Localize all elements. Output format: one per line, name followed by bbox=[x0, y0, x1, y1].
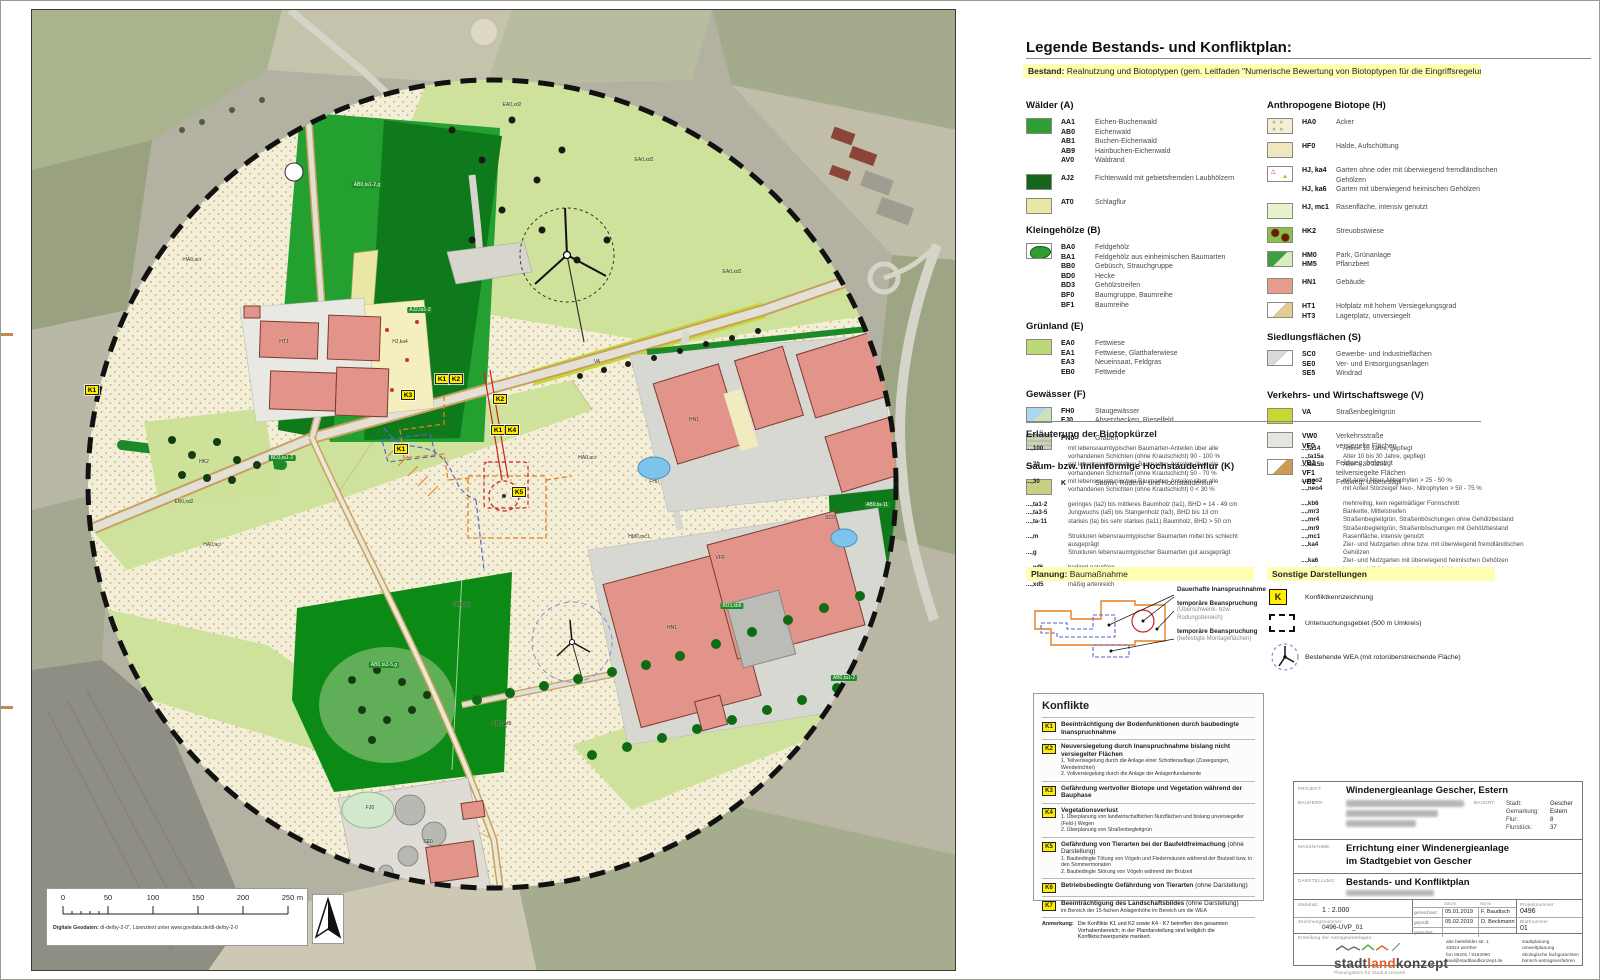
legend-row: AB9Hainbuchen-Eichenwald bbox=[1061, 147, 1258, 157]
biotope-code: HM5 bbox=[1302, 260, 1336, 270]
legend-row: AB0Eichenwald bbox=[1061, 128, 1258, 138]
biotope-code: FH0 bbox=[1061, 407, 1095, 417]
kuerzel-description: mit Anteil Störzeiger Neo-, Nitrophyten … bbox=[1343, 485, 1482, 493]
titleblock-row-logo: Erstellung der Antragsunterlagen: stadtl… bbox=[1294, 934, 1582, 967]
signature-header-cell: Datum bbox=[1442, 900, 1478, 907]
kuerzel-code: ...,mc1 bbox=[1301, 533, 1343, 541]
map-konflikt-badge: K3 bbox=[401, 390, 415, 400]
konflikt-badge: K3 bbox=[1042, 786, 1056, 796]
forest-area-label: AB0,ta3-5,g bbox=[369, 662, 399, 668]
redacted-text bbox=[1346, 890, 1434, 896]
biotope-code: AJ2 bbox=[1061, 174, 1095, 184]
biotope-description: Rasenfläche, intensiv genutzt bbox=[1336, 203, 1427, 213]
legend-entry-lines: HK2Streuobstwiese bbox=[1302, 227, 1517, 243]
signature-row: gezeichnet:05.01.2019F. Baudisch bbox=[1412, 907, 1516, 917]
biotope-description: Acker bbox=[1336, 118, 1354, 128]
konflikt-row: K6Betriebsbedingte Gefährdung von Tierar… bbox=[1042, 878, 1255, 896]
planung-label: Planung: bbox=[1031, 569, 1067, 579]
plan-sheet-border: AB0,ta1-2,gAJ2,ta1-2AB0,ta3-5,gAB9,ta-11… bbox=[0, 0, 1600, 980]
signature-header: DatumName bbox=[1412, 900, 1516, 907]
anmerkung-label: Anmerkung: bbox=[1042, 921, 1074, 941]
bauort-row: Stadt:Gescher bbox=[1506, 800, 1582, 808]
aa-swatch-icon bbox=[1026, 118, 1052, 134]
biotope-description: Hainbuchen-Eichenwald bbox=[1095, 147, 1171, 157]
bauort-table: Stadt:GescherGemarkung:EsternFlur:8Flurs… bbox=[1506, 800, 1582, 832]
baumassnahme-label-main: temporäre Beanspruchung bbox=[1177, 600, 1272, 608]
legend-entry: HJ, ka4Garten ohne oder mit überwiegend … bbox=[1267, 166, 1517, 195]
biotope-description: Baumgruppe, Baumreihe bbox=[1095, 291, 1173, 301]
kuerzel-code: ...,mr4 bbox=[1301, 516, 1343, 524]
kuerzel-code: ...,ta-11 bbox=[1026, 518, 1068, 526]
kuerzel-code: ...,g bbox=[1026, 549, 1068, 557]
blattnummer-label: Blattnummer bbox=[1520, 919, 1548, 924]
titleblock-row-project: PROJEKT: Windenergieanlage Gescher, Este… bbox=[1294, 782, 1582, 840]
biotope-code: BA0 bbox=[1061, 243, 1095, 253]
konflikt-row: K3Gefährdung wertvoller Biotope und Vege… bbox=[1042, 781, 1255, 803]
ea-swatch-icon bbox=[1026, 339, 1052, 355]
redacted-text bbox=[1346, 810, 1438, 817]
erlaeuterung-row: ...,neo4mit Anteil Störzeiger Neo-, Nitr… bbox=[1301, 485, 1551, 493]
kuerzel-description: starkes (ta) bis sehr starkes (ta11) Bau… bbox=[1068, 518, 1231, 526]
kuerzel-description: geringes (ta2) bis mittleres Baumholz (t… bbox=[1068, 501, 1237, 509]
konflikt-row: K5Gefährdung von Tierarten bei der Baufe… bbox=[1042, 837, 1255, 878]
aj-swatch-icon bbox=[1026, 174, 1052, 190]
scale-ticks bbox=[53, 903, 301, 917]
biotope-description: Gehölzstreifen bbox=[1095, 281, 1140, 291]
legend-row: AV0Waldrand bbox=[1061, 156, 1258, 166]
legend-entry-lines: HN1Gebäude bbox=[1302, 278, 1517, 294]
darstellung-value: Bestands- und Konfliktplan bbox=[1346, 877, 1470, 888]
biotope-description: Hofplatz mit hohem Versiegelungsgrad bbox=[1336, 302, 1456, 312]
kuerzel-code: ...,xd5 bbox=[1026, 581, 1068, 589]
konflikt-sub: im Bereich der 15-fachen Anlagenhöhe im … bbox=[1061, 908, 1239, 914]
biotope-code: EB0 bbox=[1061, 368, 1095, 378]
erlaeuterung-row: ...,mr4Straßenbegleitgrün, Straßenböschu… bbox=[1301, 516, 1551, 524]
biotope-area-label: SE0 bbox=[423, 839, 432, 845]
legend-row: BF1Baumreihe bbox=[1061, 301, 1258, 311]
legend-title: Legende Bestands- und Konfliktplan: bbox=[1026, 39, 1292, 56]
konflikt-main: Beeinträchtigung der Bodenfunktionen dur… bbox=[1061, 721, 1255, 736]
hjmc-swatch-icon bbox=[1267, 203, 1293, 219]
blattnummer-value: 01 bbox=[1520, 925, 1528, 932]
legend-entry: BA0FeldgehölzBA1Feldgehölz aus einheimis… bbox=[1026, 243, 1258, 310]
erlaeuterung-group: ...,100mit lebensraumtypischen Baumarten… bbox=[1026, 445, 1256, 494]
erlaeuterung-row: ...,ka4Zier- und Nutzgarten ohne bzw. mi… bbox=[1301, 541, 1551, 557]
biotope-code: AV0 bbox=[1061, 156, 1095, 166]
untersuchungsgebiet-icon bbox=[1269, 614, 1295, 632]
kuerzel-description: Strukturen lebensraumtypischer Baumarten… bbox=[1068, 549, 1230, 557]
biotope-code: BD0 bbox=[1061, 272, 1095, 282]
legend-row: HA0Acker bbox=[1302, 118, 1517, 128]
konflikt-sub: 2. Vollversiegelung durch die Anlage der… bbox=[1061, 771, 1255, 777]
konflikt-badge: K5 bbox=[1042, 842, 1056, 852]
biotope-description: Staugewässer bbox=[1095, 407, 1139, 417]
kuerzel-description: Rasenfläche, intensiv genutzt bbox=[1343, 533, 1424, 541]
forest-area-label: BD3,ta1-2 bbox=[269, 455, 296, 461]
kuerzel-code: ...,ka4 bbox=[1301, 541, 1343, 557]
biotope-description: Straßenbegleitgrün bbox=[1336, 408, 1396, 418]
kuerzel-description: Straßenbegleitgrün, Straßenböschungen mi… bbox=[1343, 525, 1508, 533]
kuerzel-code: ...,ta3-5 bbox=[1026, 509, 1068, 517]
legend-entry: HN1Gebäude bbox=[1267, 278, 1517, 294]
baumassnahme-label: temporäre Beanspruchung(befestigte Monta… bbox=[1177, 628, 1272, 643]
biotope-area-label: HA0,aci bbox=[578, 455, 596, 461]
logo-tagline: Planungsbüro für Stadt & Umwelt bbox=[1334, 971, 1448, 976]
konflikt-row: K2Neuversiegelung durch Inanspruchnahme … bbox=[1042, 739, 1255, 780]
biotope-area-label: FH0 bbox=[649, 479, 658, 485]
legend-row: FH0Staugewässer bbox=[1061, 407, 1258, 417]
konflikt-badge: K6 bbox=[1042, 883, 1056, 893]
konflikt-main: Neuversiegelung durch Inanspruchnahme bi… bbox=[1061, 743, 1255, 758]
sonstige-item-label: Konfliktkennzeichnung bbox=[1305, 594, 1373, 601]
legend-column-right: Anthropogene Biotope (H)HA0AckerHF0Halde… bbox=[1267, 89, 1517, 496]
scale-number: 150 bbox=[192, 893, 205, 902]
vw-swatch-icon bbox=[1267, 432, 1293, 448]
legend-row: BA0Feldgehölz bbox=[1061, 243, 1258, 253]
erlaeuterung-row: ...,mc1Rasenfläche, intensiv genutzt bbox=[1301, 533, 1551, 541]
legend-row: BA1Feldgehölz aus einheimischen Baumarte… bbox=[1061, 253, 1258, 263]
konflikt-symbol: K bbox=[1269, 589, 1287, 605]
biotope-area-label: HK2 bbox=[199, 459, 209, 465]
bauort-field-value: 37 bbox=[1550, 824, 1557, 832]
biotope-code: BF0 bbox=[1061, 291, 1095, 301]
ha-swatch-icon bbox=[1267, 118, 1293, 134]
biotope-description: Eichenwald bbox=[1095, 128, 1131, 138]
biotope-area-label: EA0,xd2 bbox=[723, 269, 742, 275]
konflikt-sub: 1. Überplanung von landwirtschaftlichen … bbox=[1061, 814, 1255, 827]
sonstige-items: KKonfliktkennzeichnungUntersuchungsgebie… bbox=[1269, 589, 1499, 682]
fold-mark bbox=[1, 333, 13, 336]
biotope-code: HN1 bbox=[1302, 278, 1336, 288]
biotope-area-label: EA0,xd2 bbox=[503, 102, 522, 108]
map-panel: AB0,ta1-2,gAJ2,ta1-2AB0,ta3-5,gAB9,ta-11… bbox=[31, 9, 956, 971]
biotope-code: EA0 bbox=[1061, 339, 1095, 349]
scale-number: 200 bbox=[237, 893, 250, 902]
legend-entry-lines: AA1Eichen-BuchenwaldAB0EichenwaldAB1Buch… bbox=[1061, 118, 1258, 166]
kuerzel-description: mit lebensraumtypischen Baumarten-Anteil… bbox=[1068, 445, 1256, 461]
signature-date: 05.02.2019 bbox=[1442, 918, 1478, 927]
logo-glyph bbox=[1334, 943, 1404, 952]
legend-entry: EA0FettwieseEA1Fettwiese, Glatthaferwies… bbox=[1026, 339, 1258, 377]
legend-row: HJ, mc1Rasenfläche, intensiv genutzt bbox=[1302, 203, 1517, 213]
aerial-map bbox=[32, 10, 956, 971]
company-services: stadtplanungumweltplanungökologische fac… bbox=[1522, 940, 1584, 966]
legend-row: HM0Park, Grünanlage bbox=[1302, 251, 1517, 261]
kuerzel-description: Zier- und Nutzgarten mit überwiegend hei… bbox=[1343, 557, 1508, 565]
legend-entry-lines: HJ, ka4Garten ohne oder mit überwiegend … bbox=[1302, 166, 1517, 195]
kuerzel-code: ...,70 bbox=[1026, 461, 1068, 477]
signature-grid: DatumNamegezeichnet:05.01.2019F. Baudisc… bbox=[1412, 900, 1516, 937]
biotope-code: AB9 bbox=[1061, 147, 1095, 157]
legend-entry-lines: HM0Park, GrünanlageHM5Pflanzbeet bbox=[1302, 251, 1517, 270]
legend-row: HF0Halde, Aufschüttung bbox=[1302, 142, 1517, 152]
erlaeuterung-row: ...,ta15bAlter > 30 Jahre bbox=[1301, 461, 1551, 469]
legend-group-title: Grünland (E) bbox=[1026, 321, 1258, 332]
logo-part1: stadt bbox=[1334, 956, 1367, 971]
biotope-area-label: HT1 bbox=[279, 339, 288, 345]
biotope-description: Ver- und Entsorgungsanlagen bbox=[1336, 360, 1429, 370]
signature-name: D. Beckmann bbox=[1478, 918, 1515, 927]
biotope-area-label: VA bbox=[594, 359, 600, 365]
legend-row: HT1Hofplatz mit hohem Versiegelungsgrad bbox=[1302, 302, 1517, 312]
konflikt-sub: 1. Baubedingte Tötung von Vögeln und Fle… bbox=[1061, 856, 1255, 869]
kuerzel-description: mit Anteil Neo-, Nitrophyten > 25 - 50 % bbox=[1343, 477, 1452, 485]
plan-sheet: { "colors":{"legend_bar":"#ffffb3","conf… bbox=[0, 0, 1600, 980]
biotope-description: Eichen-Buchenwald bbox=[1095, 118, 1157, 128]
wea-icon bbox=[1269, 641, 1305, 673]
legend-entry-lines: FH0StaugewässerFJ0Absetzbecken, Rieselfe… bbox=[1061, 407, 1258, 426]
bauort-field-label: Flur: bbox=[1506, 816, 1550, 824]
forest-area-label: AJ2,ta1-2 bbox=[407, 307, 432, 313]
biotope-code: BF1 bbox=[1061, 301, 1095, 311]
konflikt-sub: 1. Teilversiegelung durch die Anlage ein… bbox=[1061, 758, 1255, 771]
projekt-label: PROJEKT: bbox=[1298, 786, 1322, 791]
erlaeuterung-row: ...,ta14Alter < 10 Jahre, gepflegt bbox=[1301, 445, 1551, 453]
legend-row: HK2Streuobstwiese bbox=[1302, 227, 1517, 237]
biotope-code: SE0 bbox=[1302, 360, 1336, 370]
biotope-description: Hecke bbox=[1095, 272, 1115, 282]
bauherr-label: BAUHERR: bbox=[1298, 800, 1323, 805]
geodata-note-label: Digitale Geodaten: bbox=[53, 925, 99, 931]
kuerzel-description: Zier- und Nutzgarten ohne bzw. mit überw… bbox=[1343, 541, 1551, 557]
signature-name: F. Baudisch bbox=[1478, 908, 1515, 917]
erlaeuterung-row: ...,ta15aAlter 10 bis 30 Jahre, gepflegt bbox=[1301, 453, 1551, 461]
bauort-field-label: Gemarkung: bbox=[1506, 808, 1550, 816]
title-block: PROJEKT: Windenergieanlage Gescher, Este… bbox=[1293, 781, 1583, 966]
legend-entry-lines: EA0FettwieseEA1Fettwiese, Glatthaferwies… bbox=[1061, 339, 1258, 377]
bestand-bar: Bestand: Realnutzung und Biotoptypen (ge… bbox=[1023, 64, 1481, 78]
scale-number: 50 bbox=[104, 893, 112, 902]
kuerzel-description: Jungwuchs (ta5) bis Stangenholz (ta3), B… bbox=[1068, 509, 1218, 517]
address-line: mail@stadtlandkonzept.de bbox=[1446, 959, 1520, 965]
legend-row: AB1Buchen-Eichenwald bbox=[1061, 137, 1258, 147]
konflikt-text: Beeinträchtigung der Bodenfunktionen dur… bbox=[1061, 721, 1255, 736]
biotope-description: Fichtenwald mit gebietsfremden Laubhölze… bbox=[1095, 174, 1234, 184]
legend-row: BF0Baumgruppe, Baumreihe bbox=[1061, 291, 1258, 301]
sonstige-item: KKonfliktkennzeichnung bbox=[1269, 589, 1499, 605]
map-konflikt-badge: K5 bbox=[512, 487, 526, 497]
legend-entry-lines: HJ, mc1Rasenfläche, intensiv genutzt bbox=[1302, 203, 1517, 219]
massnahme-line1: Errichtung einer Windenergieanlage bbox=[1346, 843, 1509, 854]
baumassnahme-label-sub: (Überschwenk- bzw. Rodungsbereich) bbox=[1177, 607, 1272, 622]
kuerzel-description: mäßig artenreich bbox=[1068, 581, 1114, 589]
massstab-label: Maßstab: bbox=[1298, 902, 1319, 907]
biotope-area-label: FJ0 bbox=[366, 805, 374, 811]
legend-entry-lines: HF0Halde, Aufschüttung bbox=[1302, 142, 1517, 158]
projektnummer-label: Projektnummer bbox=[1520, 902, 1554, 907]
konflikt-main: Gefährdung von Tierarten bei der Baufeld… bbox=[1061, 841, 1255, 856]
baumassnahme-label-main: temporäre Beanspruchung bbox=[1177, 628, 1272, 636]
logo-part2: land bbox=[1367, 956, 1396, 971]
baumassnahme-label-sub: (befestigte Montageflächen) bbox=[1177, 636, 1272, 644]
hm-swatch-icon bbox=[1267, 251, 1293, 267]
biotope-description: Halde, Aufschüttung bbox=[1336, 142, 1399, 152]
biotope-code: HM0 bbox=[1302, 251, 1336, 261]
biotope-code: BD3 bbox=[1061, 281, 1095, 291]
legend-row: AJ2Fichtenwald mit gebietsfremden Laubhö… bbox=[1061, 174, 1258, 184]
biotope-code: SE5 bbox=[1302, 369, 1336, 379]
biotope-description: Feldgehölz bbox=[1095, 243, 1129, 253]
legend-entry-lines: BA0FeldgehölzBA1Feldgehölz aus einheimis… bbox=[1061, 243, 1258, 310]
biotope-description: Schlagflur bbox=[1095, 198, 1126, 208]
forest-area-label: AB0,ta1-2,g bbox=[352, 182, 382, 188]
biotope-area-label: HM0,mc1 bbox=[628, 534, 649, 540]
sc-swatch-icon bbox=[1267, 350, 1293, 366]
titleblock-row-meta: Maßstab: 1 : 2.000 Zeichnungsnummer: 049… bbox=[1294, 900, 1582, 934]
konflikt-badge: K7 bbox=[1042, 901, 1056, 911]
biotope-area-label: EA0,xd2 bbox=[635, 157, 654, 163]
map-konflikt-badge: K1 bbox=[491, 425, 505, 435]
biotope-description: Verkehrsstraße bbox=[1336, 432, 1383, 442]
at-swatch-icon bbox=[1026, 198, 1052, 214]
legend-row: SE0Ver- und Entsorgungsanlagen bbox=[1302, 360, 1517, 370]
bauort-field-value: 8 bbox=[1550, 816, 1553, 824]
bauort-row: Gemarkung:Estern bbox=[1506, 808, 1582, 816]
legend-row: AT0Schlagflur bbox=[1061, 198, 1258, 208]
kuerzel-description: Strukturen lebensraumtypischer Baumarten… bbox=[1068, 533, 1256, 549]
sonstige-item: Untersuchungsgebiet (500 m Umkreis) bbox=[1269, 614, 1499, 632]
legend-row: HM5Pflanzbeet bbox=[1302, 260, 1517, 270]
massnahme-line2: im Stadtgebiet von Gescher bbox=[1346, 856, 1472, 867]
erlaeuterung-row: ...,kb6mehrreihig, kein regelmäßiger For… bbox=[1301, 500, 1551, 508]
legend-row: BD0Hecke bbox=[1061, 272, 1258, 282]
kuerzel-code: ...,kb6 bbox=[1301, 500, 1343, 508]
legend-row: HJ, ka4Garten ohne oder mit überwiegend … bbox=[1302, 166, 1517, 185]
konflikt-badge: K4 bbox=[1042, 808, 1056, 818]
map-konflikt-badge: K1 bbox=[394, 444, 408, 454]
biotope-description: Waldrand bbox=[1095, 156, 1125, 166]
signature-role: geprüft: bbox=[1412, 918, 1442, 927]
k-icon: K bbox=[1269, 589, 1305, 605]
erlaeuterung-row: ...,ta1-2geringes (ta2) bis mittleres Ba… bbox=[1026, 501, 1256, 509]
legend-row: HN1Gebäude bbox=[1302, 278, 1517, 288]
kuerzel-description: Straßenbegleitgrün, Straßenböschungen oh… bbox=[1343, 516, 1514, 524]
bauort-row: Flurstück:37 bbox=[1506, 824, 1582, 832]
map-konflikt-badge: K1 bbox=[435, 374, 449, 384]
biotope-description: Fettwiese, Glatthaferwiese bbox=[1095, 349, 1177, 359]
bestand-text: Realnutzung und Biotoptypen (gem. Leitfa… bbox=[1064, 66, 1481, 76]
legend-entry-lines: AJ2Fichtenwald mit gebietsfremden Laubhö… bbox=[1061, 174, 1258, 190]
biotope-code: AB0 bbox=[1061, 128, 1095, 138]
biotope-description: Lagerplatz, unversiegelt bbox=[1336, 312, 1410, 322]
bauort-row: Flur:8 bbox=[1506, 816, 1582, 824]
biotope-code: EA1 bbox=[1061, 349, 1095, 359]
legend-row: SC0Gewerbe- und Industrieflächen bbox=[1302, 350, 1517, 360]
bauort-field-value: Estern bbox=[1550, 808, 1567, 816]
geodata-note-text: dl-de/by-2-0", Lizenztext unter www.govd… bbox=[99, 925, 238, 931]
biotope-code: EA3 bbox=[1061, 358, 1095, 368]
biotope-description: Park, Grünanlage bbox=[1336, 251, 1391, 261]
legend-row: SE5Windrad bbox=[1302, 369, 1517, 379]
erlaeuterung-row: ...,neo2mit Anteil Neo-, Nitrophyten > 2… bbox=[1301, 477, 1551, 485]
legend-row: BD3Gehölzstreifen bbox=[1061, 281, 1258, 291]
redacted-text bbox=[1346, 800, 1464, 807]
kuerzel-description: Bankette, Mittelstreifen bbox=[1343, 508, 1406, 516]
sonstige-item-label: Untersuchungsgebiet (500 m Umkreis) bbox=[1305, 620, 1421, 627]
biotope-code: HT3 bbox=[1302, 312, 1336, 322]
map-konflikt-badge: K1 bbox=[85, 385, 99, 395]
scale-unit: m bbox=[297, 893, 303, 902]
konflikt-text: Neuversiegelung durch Inanspruchnahme bi… bbox=[1061, 743, 1255, 777]
forest-area-label: AB0,ta1-2 bbox=[831, 675, 857, 681]
biotope-area-label: SC0 bbox=[825, 515, 835, 521]
legend-row: VW0Verkehrsstraße bbox=[1302, 432, 1517, 442]
hn-swatch-icon bbox=[1267, 278, 1293, 294]
logo-part3: konzept bbox=[1396, 956, 1448, 971]
kuerzel-code: ...,ta1-2 bbox=[1026, 501, 1068, 509]
legend-row: EA3Neueinsaat, Feldgras bbox=[1061, 358, 1258, 368]
biotope-code: HK2 bbox=[1302, 227, 1336, 237]
signature-row: geprüft:05.02.2019D. Beckmann bbox=[1412, 917, 1516, 927]
bauort-field-value: Gescher bbox=[1550, 800, 1573, 808]
company-logo: stadtlandkonzept Planungsbüro für Stadt … bbox=[1334, 939, 1448, 976]
biotope-description: Windrad bbox=[1336, 369, 1362, 379]
biotope-area-label: VF0 bbox=[715, 555, 724, 561]
kuerzel-code: ...,ta15a bbox=[1301, 453, 1343, 461]
biotope-area-label: HN1 bbox=[689, 417, 699, 423]
biotope-description: Gebüsch, Strauchgruppe bbox=[1095, 262, 1173, 272]
konflikt-row: K7Beeinträchtigung des Landschaftsbildes… bbox=[1042, 896, 1255, 917]
bestand-label: Bestand: bbox=[1028, 66, 1064, 76]
biotope-area-label: HA0,aci bbox=[203, 542, 221, 548]
ba-swatch-icon bbox=[1026, 243, 1052, 259]
legend-entry-lines: SC0Gewerbe- und IndustrieflächenSE0Ver- … bbox=[1302, 350, 1517, 379]
scale-number: 100 bbox=[147, 893, 160, 902]
kuerzel-code: ...,neo2 bbox=[1301, 477, 1343, 485]
massnahme-label: MASSNAHME: bbox=[1298, 844, 1331, 849]
kuerzel-code: ...,ka6 bbox=[1301, 557, 1343, 565]
redacted-text bbox=[1346, 820, 1416, 827]
biotope-code: SC0 bbox=[1302, 350, 1336, 360]
biotope-code: AT0 bbox=[1061, 198, 1095, 208]
biotope-area-label: HN1 bbox=[667, 625, 677, 631]
sonstige-bar: Sonstige Darstellungen bbox=[1267, 567, 1495, 581]
company-address: alte bielefelder str. 133824 wertherfon … bbox=[1446, 940, 1520, 966]
scale-number: 0 bbox=[61, 893, 65, 902]
legend-entry: AA1Eichen-BuchenwaldAB0EichenwaldAB1Buch… bbox=[1026, 118, 1258, 166]
konflikt-main: Beeinträchtigung des Landschaftsbildes (… bbox=[1061, 900, 1239, 908]
biotope-description: Pflanzbeet bbox=[1336, 260, 1369, 270]
biotope-code: HJ, mc1 bbox=[1302, 203, 1336, 213]
scale-number: 250 bbox=[282, 893, 295, 902]
erlaeuterung-group: ...,kb6mehrreihig, kein regelmäßiger For… bbox=[1301, 500, 1551, 574]
biotope-description: Gebäude bbox=[1336, 278, 1365, 288]
konflikt-badge: K1 bbox=[1042, 722, 1056, 732]
legend-group-title: Verkehrs- und Wirtschaftswege (V) bbox=[1267, 390, 1517, 401]
biotope-code: HF0 bbox=[1302, 142, 1336, 152]
rect-icon bbox=[1269, 614, 1305, 632]
biotope-code: HJ, ka6 bbox=[1302, 185, 1336, 195]
hj-swatch-icon bbox=[1267, 166, 1293, 182]
konflikt-main: Gefährdung wertvoller Biotope und Vegeta… bbox=[1061, 785, 1255, 800]
biotope-description: Garten ohne oder mit überwiegend fremdlä… bbox=[1336, 166, 1517, 185]
forest-area-label: AB9,ta-11 bbox=[864, 502, 890, 508]
hk-swatch-icon bbox=[1267, 227, 1293, 243]
konflikt-sub: 2. Baubedingte Störung von Vögeln währen… bbox=[1061, 869, 1255, 875]
signature-date: 05.01.2019 bbox=[1442, 908, 1478, 917]
biotope-code: HT1 bbox=[1302, 302, 1336, 312]
titleblock-row-massnahme: MASSNAHME: Errichtung einer Windenergiea… bbox=[1294, 840, 1582, 874]
biotope-code: BB0 bbox=[1061, 262, 1095, 272]
konflikt-note: (ohne Darstellung) bbox=[1061, 841, 1244, 856]
forest-area-label: BD3,kb6 bbox=[720, 603, 743, 609]
legend-row: HJ, ka6Garten mit überwiegend heimischen… bbox=[1302, 185, 1517, 195]
legend-entry: HK2Streuobstwiese bbox=[1267, 227, 1517, 243]
konflikt-note: (ohne Darstellung) bbox=[1184, 900, 1238, 907]
biotope-code: HA0 bbox=[1302, 118, 1336, 128]
scale-bar: 050100150200250m Digitale Geodaten: dl-d… bbox=[46, 888, 308, 946]
baumassnahme-labels: Dauerhafte Inanspruchnahmetemporäre Bean… bbox=[1177, 586, 1272, 649]
